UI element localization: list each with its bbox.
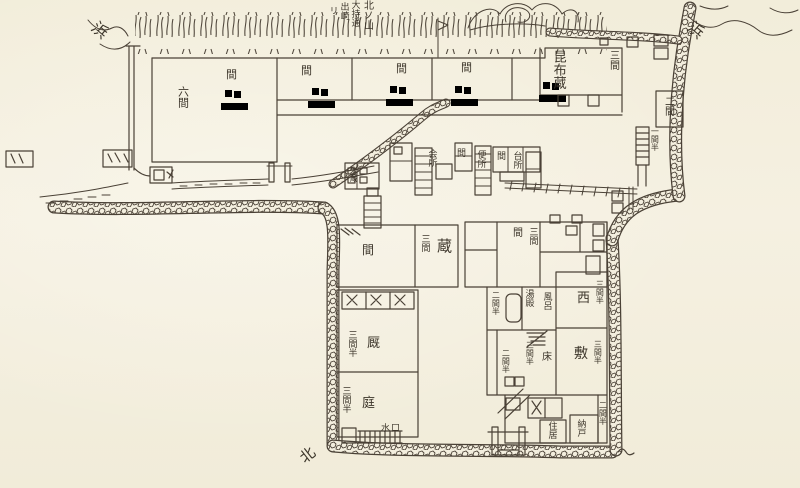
label-room-4: 間 — [461, 63, 473, 75]
label-six-ken: 六間 — [176, 86, 188, 108]
label-center-room-size: 三間半 — [525, 341, 533, 365]
small-boxes-left — [6, 150, 173, 183]
label-room-2: 間 — [301, 66, 313, 78]
label-mid-room-2: 間 — [497, 152, 507, 161]
label-rice-store: 米蔵 — [349, 166, 357, 182]
upper-compound-buildings — [126, 35, 683, 186]
label-se-size: 二間半 — [598, 401, 606, 425]
main-house — [465, 215, 607, 443]
road — [40, 163, 378, 203]
label-nando: 納戸 — [576, 419, 585, 437]
label-tokonoma: 床 — [542, 353, 553, 364]
label-mid-room-1: 間 — [457, 149, 467, 158]
label-room-1: 間 — [226, 70, 238, 82]
stone-walls — [54, 8, 690, 452]
label-west-room: 西 — [577, 291, 591, 305]
label-furo: 風呂 — [542, 292, 551, 310]
scanned-site-plan: 浜 リ 出崎 大持通 北ノ山 六間 間 間 間 間 昆布蔵 三間 二間 一間半 … — [0, 0, 800, 488]
label-three-ken-porch: 三間 — [607, 50, 618, 70]
east-fence — [505, 181, 637, 213]
label-zashiki-size: 三間半 — [593, 340, 601, 364]
label-room-3: 間 — [396, 64, 408, 76]
label-lower-room: 間 — [362, 244, 375, 257]
label-water-gate: 水口 — [381, 424, 401, 433]
label-privy: 便所 — [476, 150, 485, 168]
label-yard: 庭 — [362, 396, 376, 410]
label-three-ken-store: 三間 — [420, 234, 429, 252]
label-two-ken: 二間 — [662, 96, 673, 116]
label-west-room-size: 三間半 — [595, 280, 603, 304]
label-house-front-size: 三間 — [528, 227, 537, 245]
label-konbu-storehouse: 昆布蔵 — [552, 50, 566, 89]
label-house-room: 間 — [513, 229, 524, 240]
label-meeting-house: 会所 — [427, 149, 436, 167]
label-hill-note-1: リ — [328, 6, 337, 15]
label-storehouse: 蔵 — [437, 240, 453, 256]
label-center-size-2: 二間半 — [501, 349, 509, 373]
label-yard-size: 三間半 — [341, 386, 350, 413]
label-hill-note-3: 大持通 — [350, 0, 359, 27]
label-one-and-half-ken: 一間半 — [650, 127, 658, 151]
label-stable-size: 三間半 — [347, 330, 356, 357]
label-bathhouse: 湯殿 — [524, 289, 533, 307]
label-hill-note-2: 出崎 — [339, 2, 348, 20]
label-dwelling: 住居 — [547, 421, 556, 439]
label-bath-size: 二間半 — [491, 291, 499, 315]
label-kitchen: 台所 — [512, 151, 521, 169]
label-stable: 厩 — [367, 336, 381, 350]
label-hill-note-4: 北ノ山 — [361, 0, 372, 30]
label-zashiki: 敷 — [574, 348, 589, 363]
